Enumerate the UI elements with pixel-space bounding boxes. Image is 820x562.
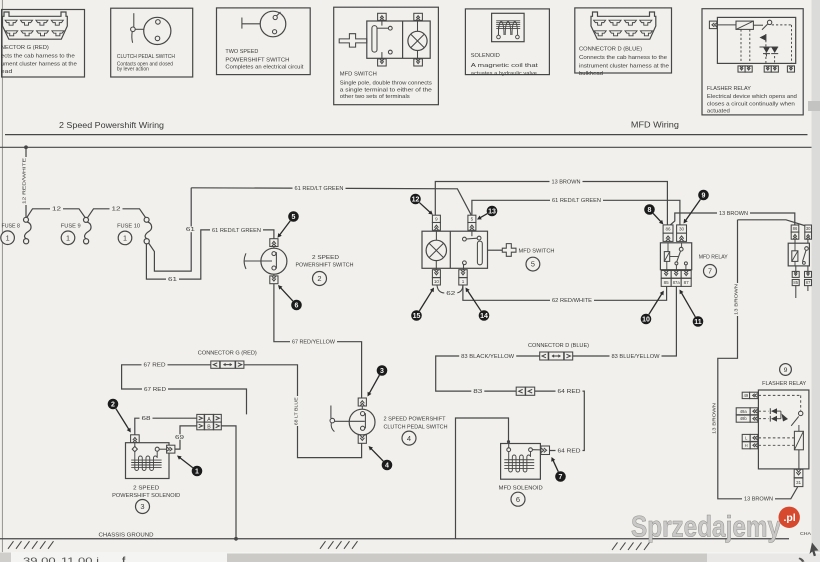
svg-text:MFD RELAY: MFD RELAY [699,254,728,260]
svg-text:85: 85 [793,280,798,285]
svg-text:2 Speed Powershift Wiring: 2 Speed Powershift Wiring [59,121,164,130]
svg-text:FUSE 10: FUSE 10 [117,223,140,229]
svg-text:13 BROWN: 13 BROWN [733,283,739,315]
svg-text:6: 6 [295,303,299,310]
svg-text:actuated: actuated [707,109,730,115]
svg-text:CHASSIS GROUND: CHASSIS GROUND [99,532,154,538]
svg-text:13 BROWN: 13 BROWN [719,211,748,217]
svg-text:CLUTCH PEDAL SWITCH: CLUTCH PEDAL SWITCH [384,425,448,431]
svg-text:CONNECTOR D (BLUE): CONNECTOR D (BLUE) [579,46,642,52]
svg-text:87: 87 [806,280,811,285]
svg-text:FLASHER RELAY: FLASHER RELAY [762,381,806,387]
svg-text:CLUTCH PEDAL SWITCH: CLUTCH PEDAL SWITCH [117,54,175,60]
svg-text:83 BLUE/YELLOW: 83 BLUE/YELLOW [612,354,660,360]
svg-text:4: 4 [407,434,411,443]
svg-text:FLASHER RELAY: FLASHER RELAY [707,86,751,92]
svg-text:13 BROWN: 13 BROWN [711,402,717,434]
svg-text:CONNECTOR G (RED): CONNECTOR G (RED) [198,350,257,356]
svg-text:6: 6 [516,495,520,504]
svg-text:68 LT BLUE: 68 LT BLUE [293,397,299,425]
svg-text:8: 8 [648,207,652,214]
svg-text:Electrical device which opens: Electrical device which opens and [707,94,797,100]
svg-text:FUSE 9: FUSE 9 [61,224,81,230]
svg-text:5: 5 [292,214,296,221]
svg-text:49: 49 [744,393,749,398]
svg-text:TWO SPEED: TWO SPEED [225,49,258,55]
svg-text:61: 61 [186,227,195,233]
svg-text:3: 3 [140,502,144,511]
svg-text:Completes an electrical circui: Completes an electrical circuit [225,65,304,71]
svg-text:69: 69 [175,435,184,441]
svg-text:2: 2 [317,274,321,283]
svg-text:CHA: CHA [800,531,812,537]
svg-text:86: 86 [665,227,671,232]
svg-text:H: H [745,443,748,448]
svg-text:64 RED: 64 RED [558,389,581,395]
svg-text:13: 13 [488,209,496,216]
svg-text:4: 4 [385,463,389,470]
svg-text:MFD SWITCH: MFD SWITCH [519,249,555,255]
svg-text:67 RED: 67 RED [144,387,166,393]
svg-text:83: 83 [473,389,482,395]
svg-text:instrument cluster harness at: instrument cluster harness at the [579,63,669,69]
svg-text:bulkhead: bulkhead [579,71,603,77]
svg-text:14: 14 [480,313,488,320]
svg-text:SOLENOID: SOLENOID [471,53,500,59]
svg-text:2 SPEED: 2 SPEED [312,255,339,261]
svg-text:61 RED/LT GREEN: 61 RED/LT GREEN [552,198,601,204]
svg-text:1: 1 [462,279,465,284]
svg-text:CONNECTOR D (BLUE): CONNECTOR D (BLUE) [528,343,589,349]
svg-text:12: 12 [112,207,121,213]
svg-text:by lever action: by lever action [117,67,149,73]
svg-text:actuates a hydraulic valve: actuates a hydraulic valve [471,71,537,77]
svg-text:11: 11 [694,319,702,326]
svg-text:12: 12 [52,207,61,213]
svg-text:87: 87 [684,280,690,285]
svg-text:9: 9 [784,367,788,374]
svg-text:61 RED/LT GREEN: 61 RED/LT GREEN [295,186,344,192]
svg-text:9: 9 [435,217,438,222]
svg-text:2 SPEED POWERSHIFT: 2 SPEED POWERSHIFT [384,417,447,423]
svg-text:12 RED/WHITE: 12 RED/WHITE [22,158,28,204]
svg-text:Sprzedajemy: Sprzedajemy [631,511,781,544]
svg-text:49b: 49b [740,416,748,421]
svg-text:67 RED: 67 RED [144,363,166,369]
svg-text:85: 85 [664,280,670,285]
svg-text:POWERSHIFT SWITCH: POWERSHIFT SWITCH [296,263,354,269]
svg-text:2: 2 [111,402,115,409]
svg-text:87a: 87a [673,280,681,285]
svg-text:ead: ead [1,69,13,75]
svg-text:12: 12 [412,197,420,204]
svg-text:MFD Wiring: MFD Wiring [631,121,679,130]
svg-text:7: 7 [708,267,712,276]
svg-text:49a: 49a [740,409,748,414]
svg-text:2 SPEED: 2 SPEED [133,485,159,491]
svg-text:10: 10 [642,317,650,324]
svg-text:A magnetic coil that: A magnetic coil that [471,63,539,69]
svg-text:61 RED/LT GREEN: 61 RED/LT GREEN [212,228,261,234]
svg-text:1: 1 [123,233,127,242]
svg-text:39.00 11.00 i: 39.00 11.00 i [23,556,99,562]
svg-text:68: 68 [142,416,151,422]
svg-text:13 BROWN: 13 BROWN [552,179,581,185]
svg-text:30: 30 [679,227,685,232]
svg-text:3: 3 [380,368,384,375]
svg-text:5: 5 [471,217,474,222]
svg-text:62 RED/WHITE: 62 RED/WHITE [552,298,592,304]
svg-text:Single pole, double throw conn: Single pole, double throw connects [340,80,433,86]
svg-text:9: 9 [702,193,706,200]
svg-text:FUSE 8: FUSE 8 [2,223,21,229]
svg-text:NECTOR G (RED): NECTOR G (RED) [1,45,49,51]
svg-text:ects the cab harness to the: ects the cab harness to the [1,54,75,60]
svg-text:31: 31 [796,480,802,485]
svg-text:13 BROWN: 13 BROWN [744,497,773,503]
svg-text:61: 61 [168,277,177,283]
svg-text:67 RED/YELLOW: 67 RED/YELLOW [292,340,335,346]
svg-text:83 BLACK/YELLOW: 83 BLACK/YELLOW [461,354,514,360]
svg-text:30: 30 [806,226,811,231]
svg-text:5: 5 [531,260,535,269]
svg-text:POWERSHIFT SOLENOID: POWERSHIFT SOLENOID [112,493,180,499]
svg-text:64 RED: 64 RED [558,448,581,454]
svg-text:86: 86 [793,226,798,231]
svg-text:other two sets of terminals: other two sets of terminals [340,94,411,100]
svg-text:closes a circuit continually w: closes a circuit continually when [707,101,795,107]
svg-text:.pl: .pl [783,512,795,524]
svg-text:7: 7 [559,474,563,481]
svg-text:1: 1 [195,469,199,476]
svg-text:15: 15 [413,313,421,320]
svg-text:MFD SOLENOID: MFD SOLENOID [499,485,543,491]
svg-text:ument cluster harness at the: ument cluster harness at the [1,62,77,68]
svg-text:62: 62 [446,291,455,297]
svg-text:POWERSHIFT SWITCH: POWERSHIFT SWITCH [225,57,289,63]
svg-text:1: 1 [6,233,10,242]
svg-text:MFD SWITCH: MFD SWITCH [340,71,377,77]
svg-text:10: 10 [434,279,440,284]
svg-text:a single terminal to either of: a single terminal to either of the [340,87,432,93]
svg-text:1: 1 [66,233,70,242]
svg-text:Connects the cab harness to th: Connects the cab harness to the [579,55,667,61]
svg-text:B: B [207,425,211,431]
